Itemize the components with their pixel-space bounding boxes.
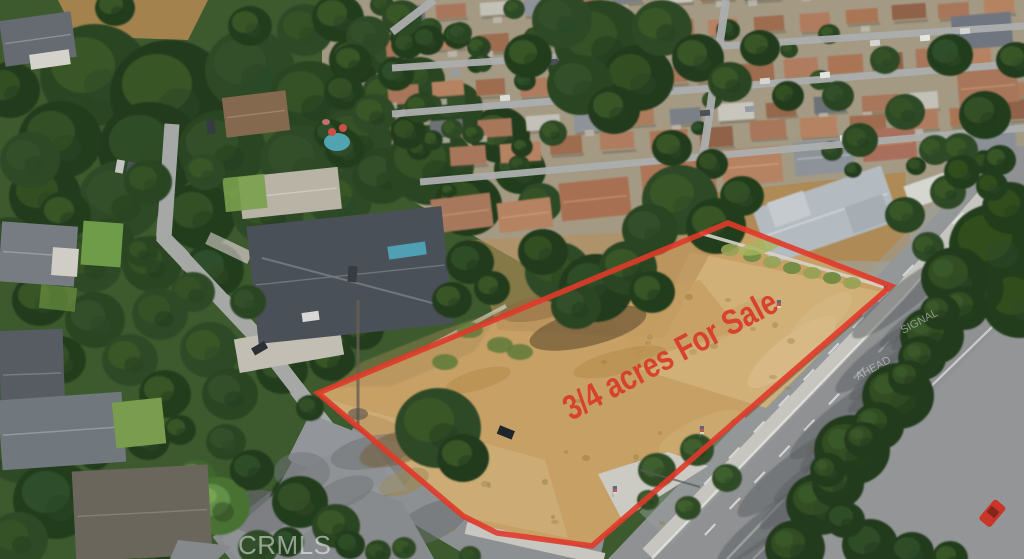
svg-text:CRMLS: CRMLS [238,530,332,559]
